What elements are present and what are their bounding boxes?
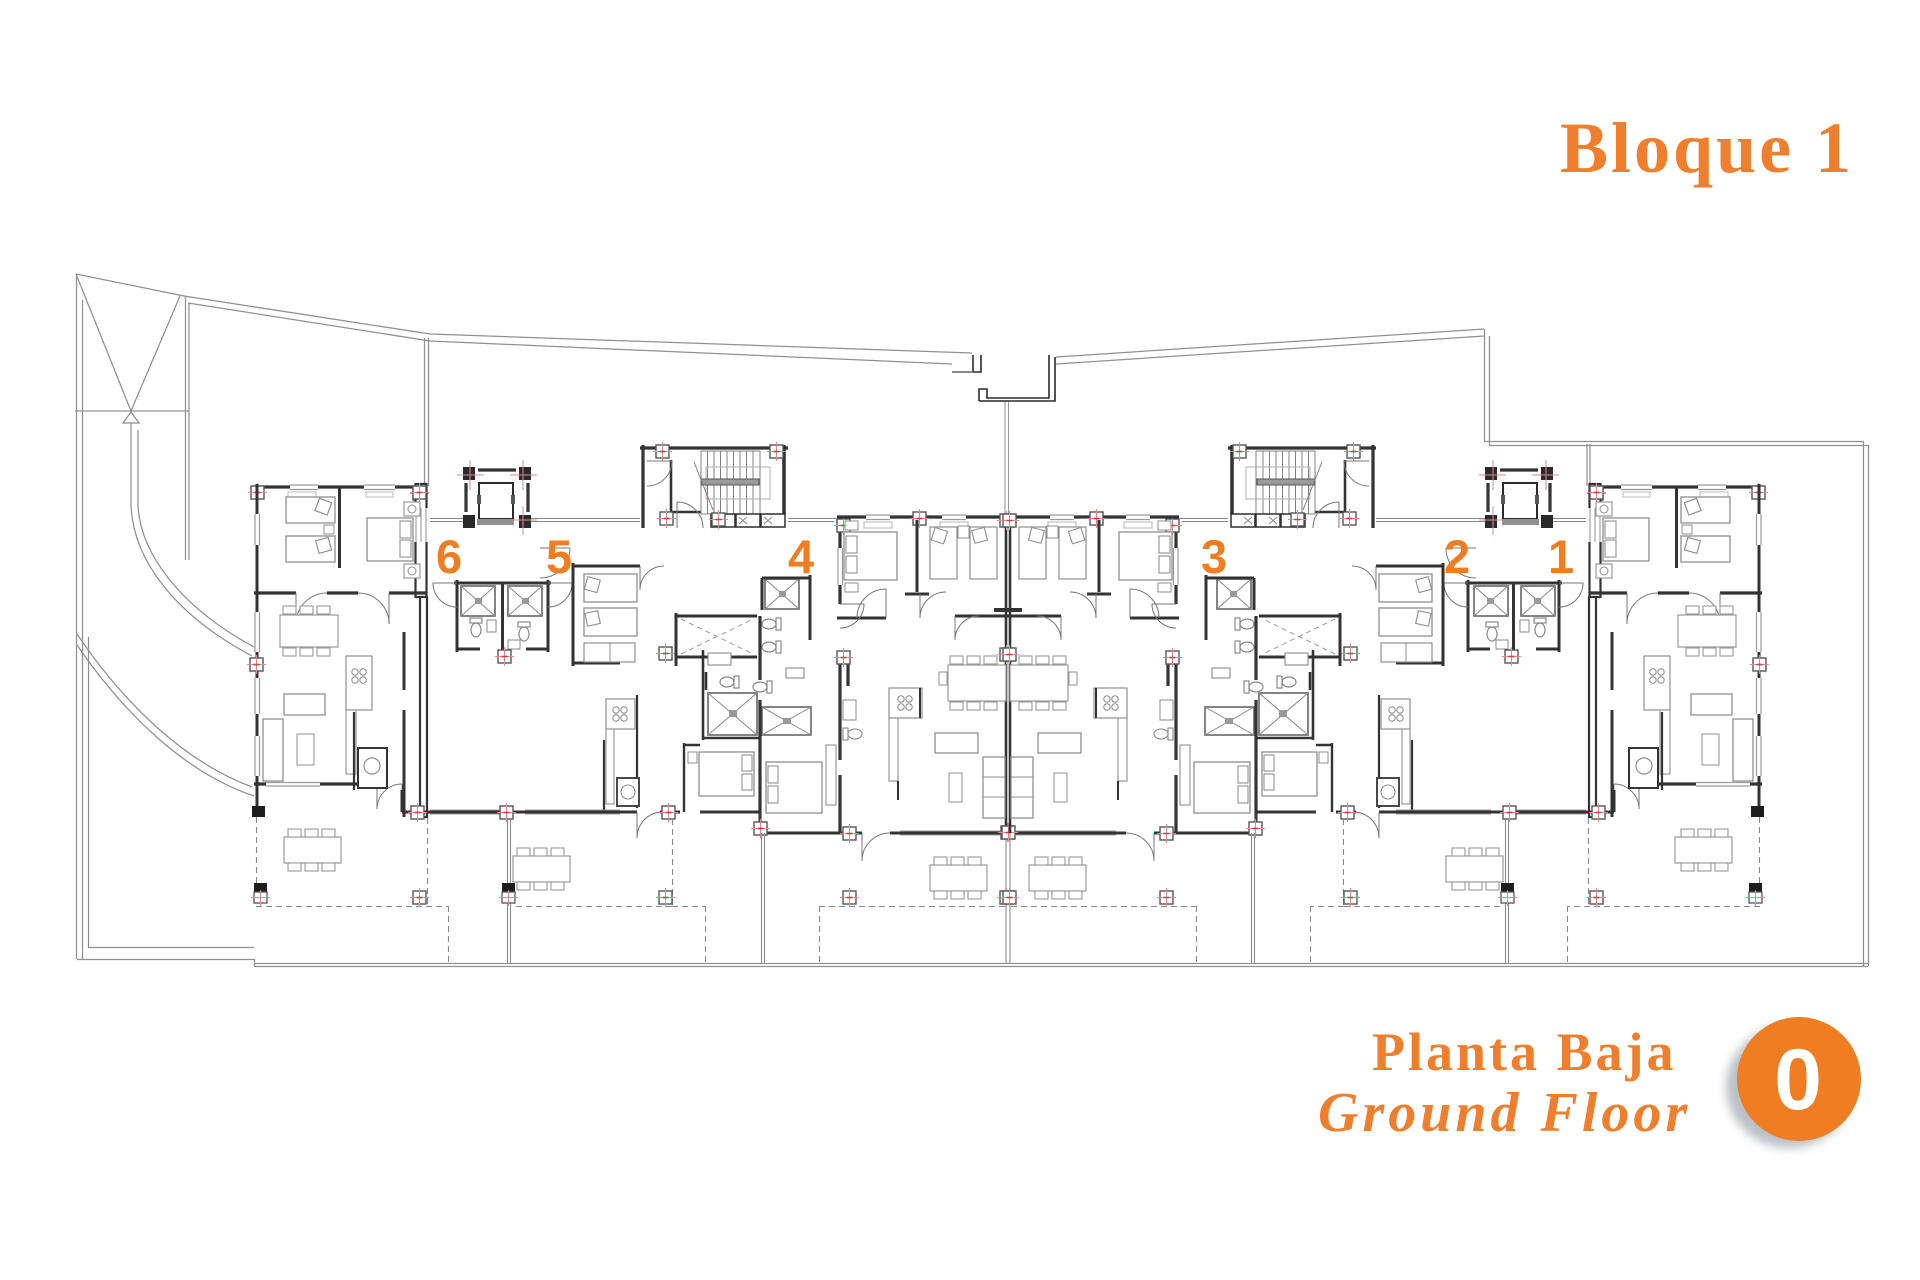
svg-text:3: 3 (1201, 530, 1227, 583)
svg-text:Bloque 1: Bloque 1 (1560, 108, 1854, 188)
svg-text:5: 5 (546, 530, 572, 583)
svg-text:4: 4 (788, 530, 814, 583)
svg-text:2: 2 (1444, 530, 1470, 583)
svg-text:Ground Floor: Ground Floor (1318, 1082, 1691, 1144)
svg-text:0: 0 (1774, 1032, 1822, 1128)
svg-text:6: 6 (436, 530, 462, 583)
svg-text:1: 1 (1548, 530, 1574, 583)
svg-text:Planta Baja: Planta Baja (1372, 1022, 1677, 1082)
